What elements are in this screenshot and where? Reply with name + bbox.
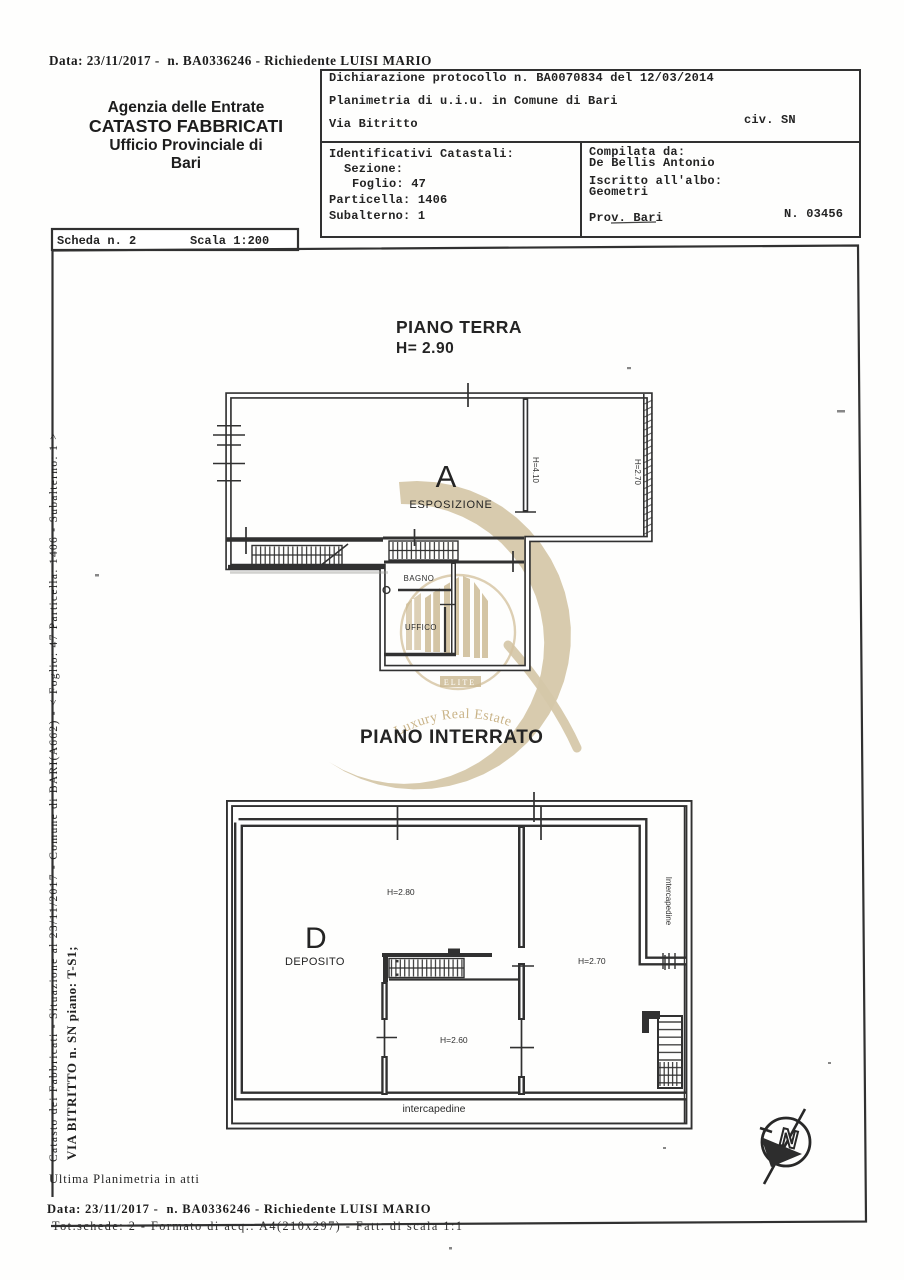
svg-text:Sezione:: Sezione: (344, 162, 403, 176)
svg-text:Scala 1:200: Scala 1:200 (190, 234, 269, 248)
svg-text:De Bellis Antonio: De Bellis Antonio (589, 156, 715, 170)
svg-text:Catasto dei Fabbricati - Situa: Catasto dei Fabbricati - Situazione al 2… (48, 432, 60, 1162)
svg-text:CATASTO FABBRICATI: CATASTO FABBRICATI (89, 116, 283, 136)
svg-text:DEPOSITO: DEPOSITO (285, 956, 345, 968)
svg-text:Intercapedine: Intercapedine (664, 877, 673, 926)
svg-text:Planimetria di u.i.u. in Comun: Planimetria di u.i.u. in Comune di Bari (329, 94, 618, 108)
svg-text:Scheda n. 2: Scheda n. 2 (57, 234, 136, 248)
svg-text:H=2.70: H=2.70 (578, 956, 606, 966)
svg-text:D: D (305, 922, 327, 955)
svg-text:PIANO INTERRATO: PIANO INTERRATO (360, 727, 544, 748)
svg-text:H=2.80: H=2.80 (387, 887, 415, 897)
svg-text:PIANO TERRA: PIANO TERRA (396, 317, 522, 337)
svg-text:civ. SN: civ. SN (744, 113, 796, 127)
svg-text:VIA BITRITTO n. SN piano: T-S1: VIA BITRITTO n. SN piano: T-S1; (64, 946, 79, 1160)
svg-text:Agenzia delle Entrate: Agenzia delle Entrate (108, 99, 265, 116)
svg-text:Subalterno: 1: Subalterno: 1 (329, 209, 425, 223)
svg-text:Tot.schede: 2 - Formato di acq: Tot.schede: 2 - Formato di acq.: A4(210x… (52, 1219, 463, 1233)
svg-text:H=2.70: H=2.70 (633, 459, 642, 486)
svg-text:Ultima Planimetria in atti: Ultima Planimetria in atti (49, 1172, 200, 1186)
svg-text:Identificativi Catastali:: Identificativi Catastali: (329, 147, 514, 161)
svg-text:Via Bitritto: Via Bitritto (329, 117, 418, 131)
svg-text:H=2.60: H=2.60 (440, 1035, 468, 1045)
svg-text:Data: 23/11/2017 - n. BA03362: Data: 23/11/2017 - n. BA0336246 - Richie… (49, 53, 432, 68)
svg-text:Data: 23/11/2017 - n. BA03362: Data: 23/11/2017 - n. BA0336246 - Richie… (47, 1202, 431, 1216)
svg-text:A: A (436, 459, 457, 494)
svg-text:UFFICO: UFFICO (405, 623, 437, 632)
svg-text:N: N (777, 1123, 801, 1155)
svg-text:BAGNO: BAGNO (404, 574, 435, 583)
svg-text:ELITE: ELITE (444, 678, 476, 687)
svg-text:Dichiarazione protocollo n. BA: Dichiarazione protocollo n. BA0070834 de… (329, 71, 714, 85)
svg-text:ESPOSIZIONE: ESPOSIZIONE (409, 499, 492, 511)
svg-text:Particella: 1406: Particella: 1406 (329, 193, 447, 207)
svg-text:N. 03456: N. 03456 (784, 207, 843, 221)
svg-text:H= 2.90: H= 2.90 (396, 340, 454, 357)
svg-text:Bari: Bari (171, 155, 201, 172)
svg-text:intercapedine: intercapedine (402, 1103, 465, 1115)
svg-text:Ufficio Provinciale di: Ufficio Provinciale di (109, 137, 262, 154)
svg-text:H=4.10: H=4.10 (531, 457, 540, 484)
svg-text:Geometri: Geometri (589, 185, 648, 199)
svg-text:Foglio: 47: Foglio: 47 (352, 177, 426, 191)
